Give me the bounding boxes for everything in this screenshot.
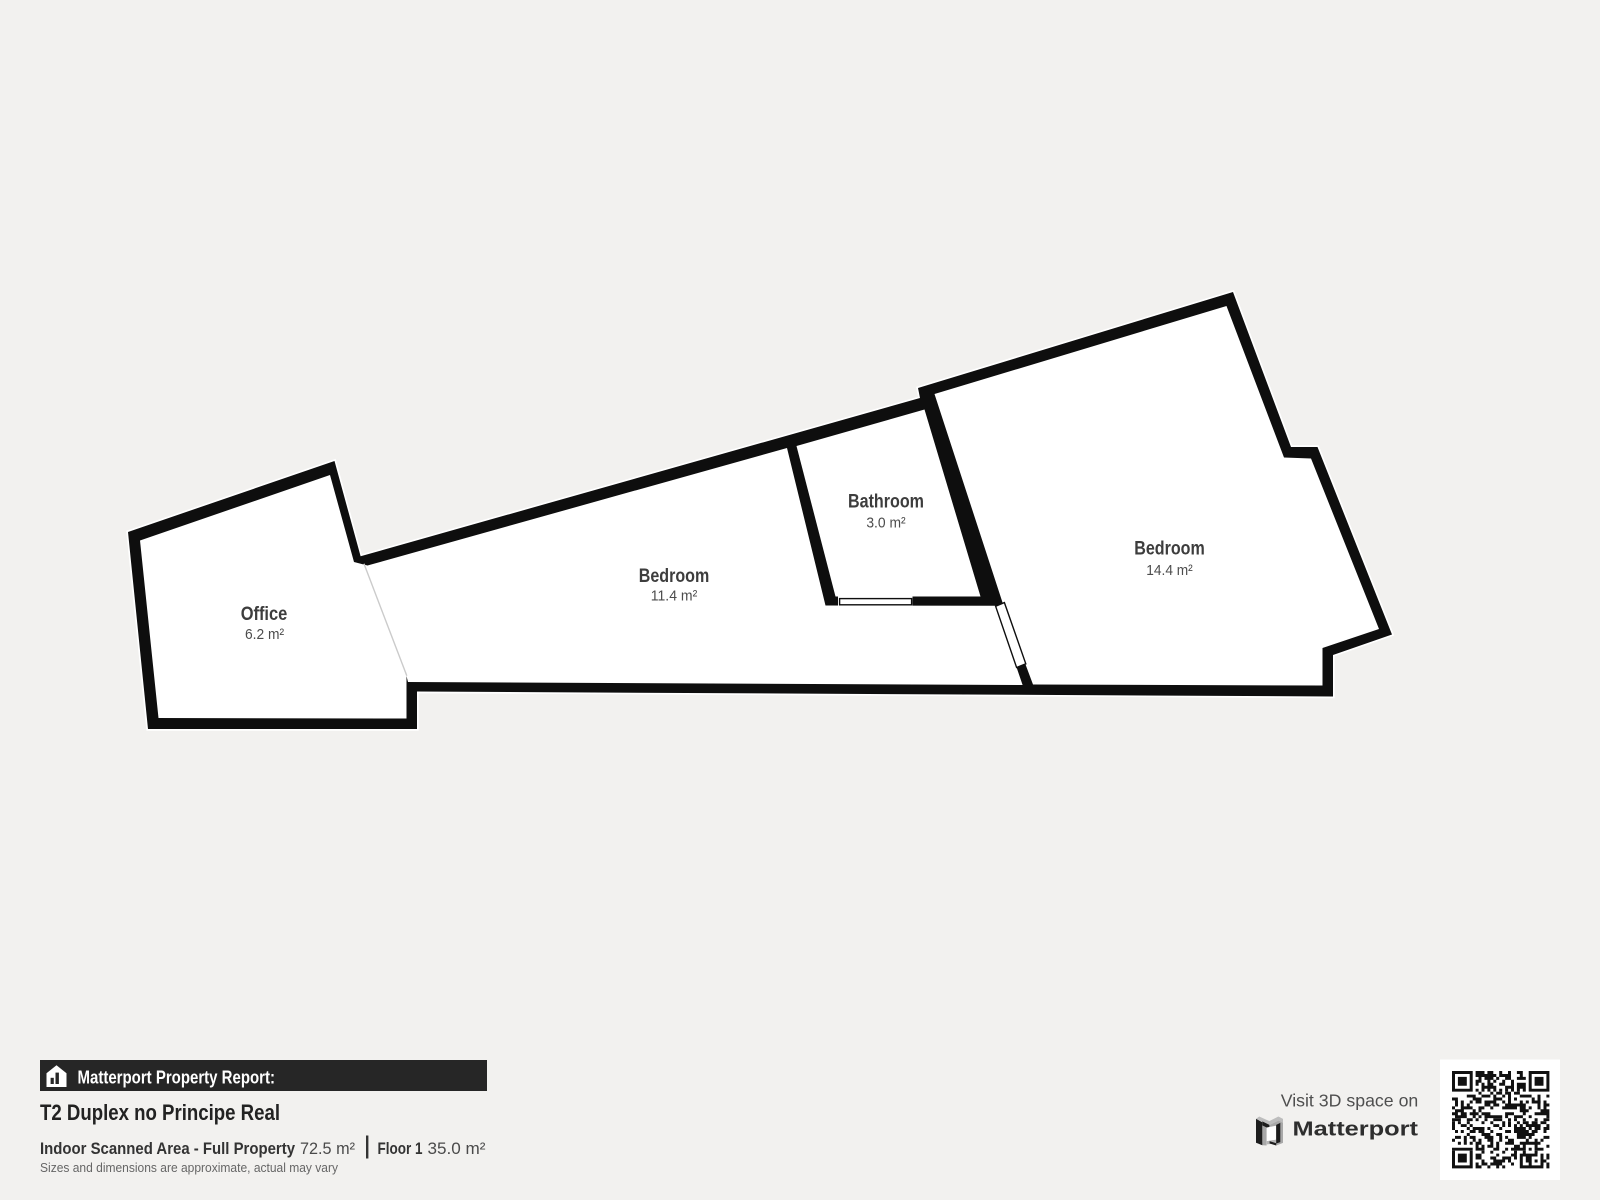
svg-text:Floor 1: Floor 1: [378, 1140, 423, 1158]
svg-text:3.0 m²: 3.0 m²: [866, 515, 905, 532]
svg-text:Matterport: Matterport: [1293, 1118, 1419, 1141]
svg-text:Bedroom: Bedroom: [639, 565, 710, 587]
svg-text:Office: Office: [241, 603, 288, 625]
svg-text:Indoor Scanned Area - Full Pro: Indoor Scanned Area - Full Property: [40, 1140, 296, 1158]
svg-text:14.4 m²: 14.4 m²: [1146, 562, 1193, 579]
svg-text:Matterport Property Report:: Matterport Property Report:: [78, 1067, 276, 1088]
svg-text:Bathroom: Bathroom: [848, 491, 924, 513]
svg-text:Sizes and dimensions are appro: Sizes and dimensions are approximate, ac…: [40, 1160, 338, 1175]
svg-text:T2 Duplex no Principe Real: T2 Duplex no Principe Real: [40, 1100, 280, 1125]
svg-text:Bedroom: Bedroom: [1134, 538, 1205, 560]
svg-text:72.5 m²: 72.5 m²: [300, 1140, 355, 1158]
svg-text:Visit 3D space on: Visit 3D space on: [1281, 1091, 1419, 1111]
svg-text:11.4 m²: 11.4 m²: [651, 588, 698, 605]
svg-text:6.2 m²: 6.2 m²: [245, 626, 284, 643]
svg-text:35.0 m²: 35.0 m²: [428, 1140, 487, 1158]
